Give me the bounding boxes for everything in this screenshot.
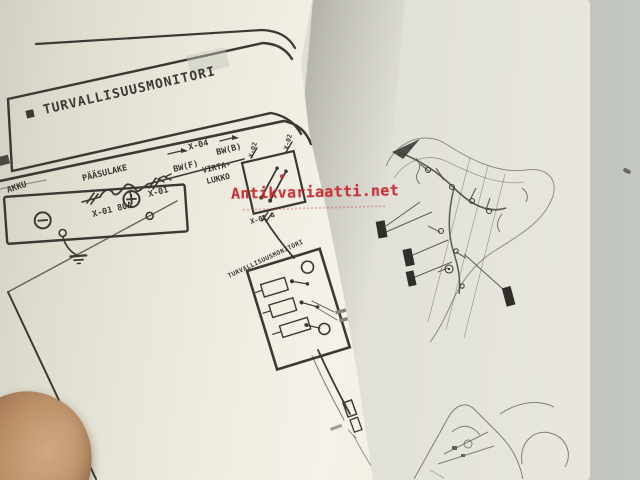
ground-icon (70, 255, 86, 264)
security-monitor-box: TURVALLISUUSMONITORI (227, 239, 351, 370)
monitor-label: TURVALLISUUSMONITORI (227, 239, 305, 280)
front-view-illustration (414, 403, 568, 479)
connector-x02-label: X-02 (247, 141, 259, 158)
connector-x02-label: X-02 (282, 133, 294, 150)
ink-mark (0, 155, 10, 166)
battery-minus-icon (38, 220, 47, 221)
page-title: ■ TURVALLISUUSMONITORI (25, 64, 218, 122)
book-photo: ■ TURVALLISUUSMONITORI AKKU (0, 0, 640, 480)
fuse-rating-label: X-01 80A (91, 200, 133, 220)
page-stack-edge (556, 0, 590, 480)
harness-illustration (386, 138, 554, 342)
ignition-label-line2: LUKKO (205, 172, 231, 186)
right-arrow-icon (232, 135, 239, 140)
wire-bwb-label: BW(B) (215, 142, 242, 158)
tiny-label-mark (330, 424, 342, 431)
battery-label: AKKU (6, 180, 29, 196)
wire-bwf-label: BW(F) (172, 159, 199, 175)
right-arrow-icon (181, 148, 188, 153)
title-box: ■ TURVALLISUUSMONITORI (8, 43, 301, 171)
fuse-label: PÄÄSULAKE (81, 162, 128, 184)
